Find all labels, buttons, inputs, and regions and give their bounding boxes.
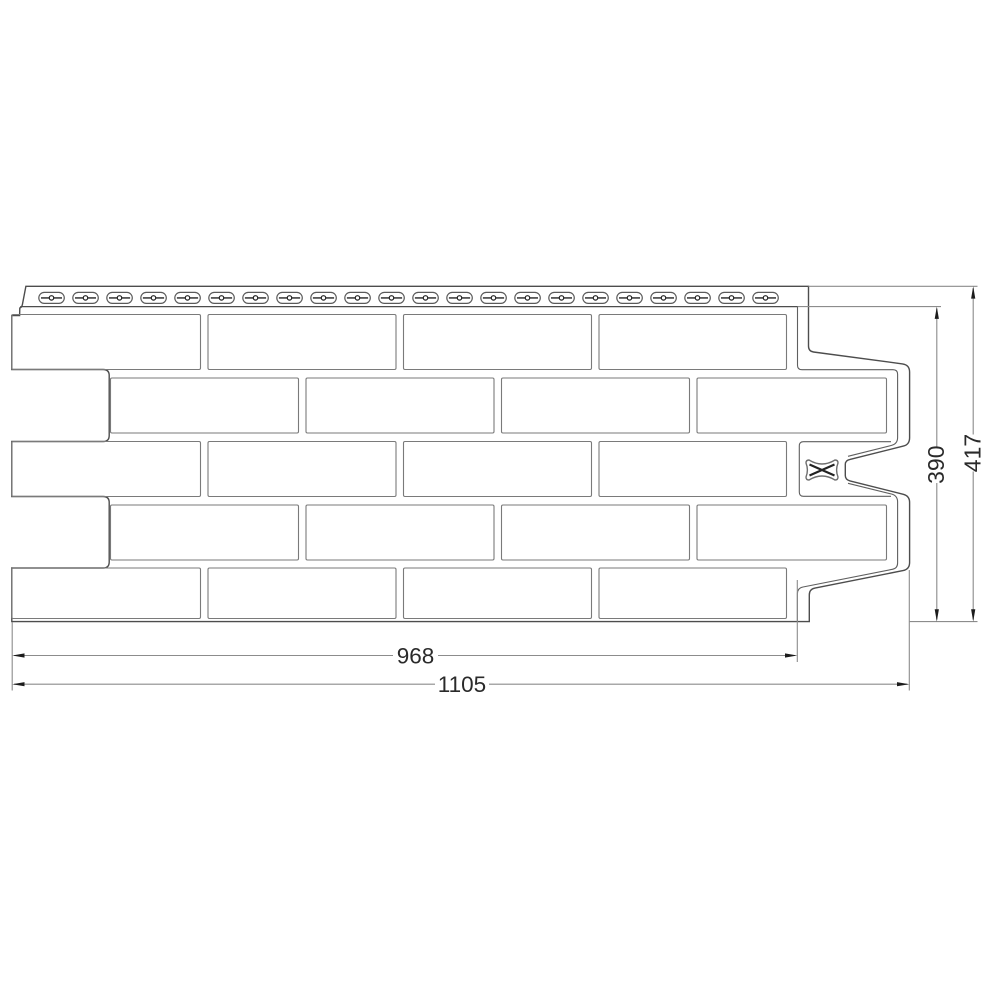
svg-text:390: 390 xyxy=(923,446,949,484)
svg-text:968: 968 xyxy=(397,643,435,668)
svg-text:1105: 1105 xyxy=(438,672,486,697)
svg-text:417: 417 xyxy=(959,434,985,472)
